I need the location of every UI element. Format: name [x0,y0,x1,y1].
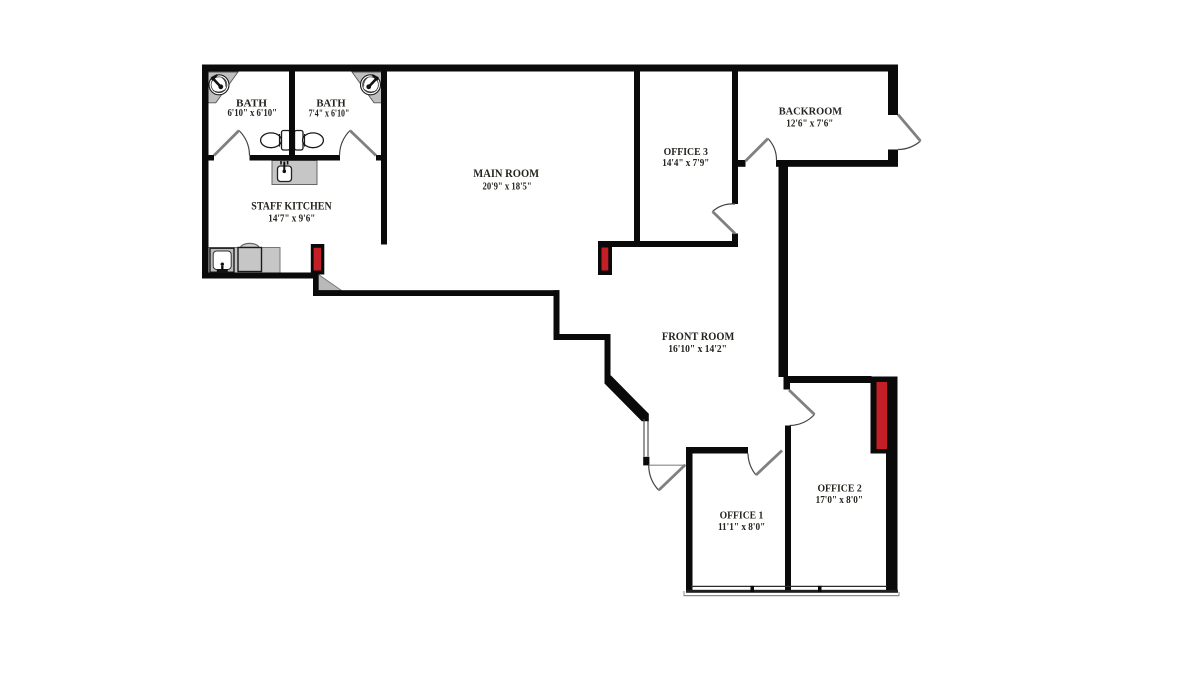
svg-text:6'10" x 6'10": 6'10" x 6'10" [227,108,277,119]
svg-text:20'9" x 18'5": 20'9" x 18'5" [483,182,532,193]
svg-text:OFFICE 2: OFFICE 2 [817,483,862,495]
svg-text:14'7" x 9'6": 14'7" x 9'6" [268,214,315,225]
svg-text:12'6" x 7'6": 12'6" x 7'6" [786,118,833,129]
svg-text:BACKROOM: BACKROOM [779,106,843,118]
svg-text:MAIN ROOM: MAIN ROOM [473,166,539,180]
svg-text:OFFICE 1: OFFICE 1 [720,510,764,522]
svg-text:14'4" x 7'9": 14'4" x 7'9" [662,158,709,169]
svg-text:OFFICE 3: OFFICE 3 [664,146,709,158]
svg-text:BATH: BATH [316,97,346,109]
svg-text:STAFF KITCHEN: STAFF KITCHEN [251,199,332,213]
svg-text:11'1" x 8'0": 11'1" x 8'0" [718,522,765,533]
svg-text:16'10" x 14'2": 16'10" x 14'2" [668,344,727,355]
svg-text:7'4" x 6'10": 7'4" x 6'10" [309,109,350,120]
svg-text:17'0" x 8'0": 17'0" x 8'0" [816,495,863,506]
svg-text:FRONT ROOM: FRONT ROOM [662,329,735,343]
